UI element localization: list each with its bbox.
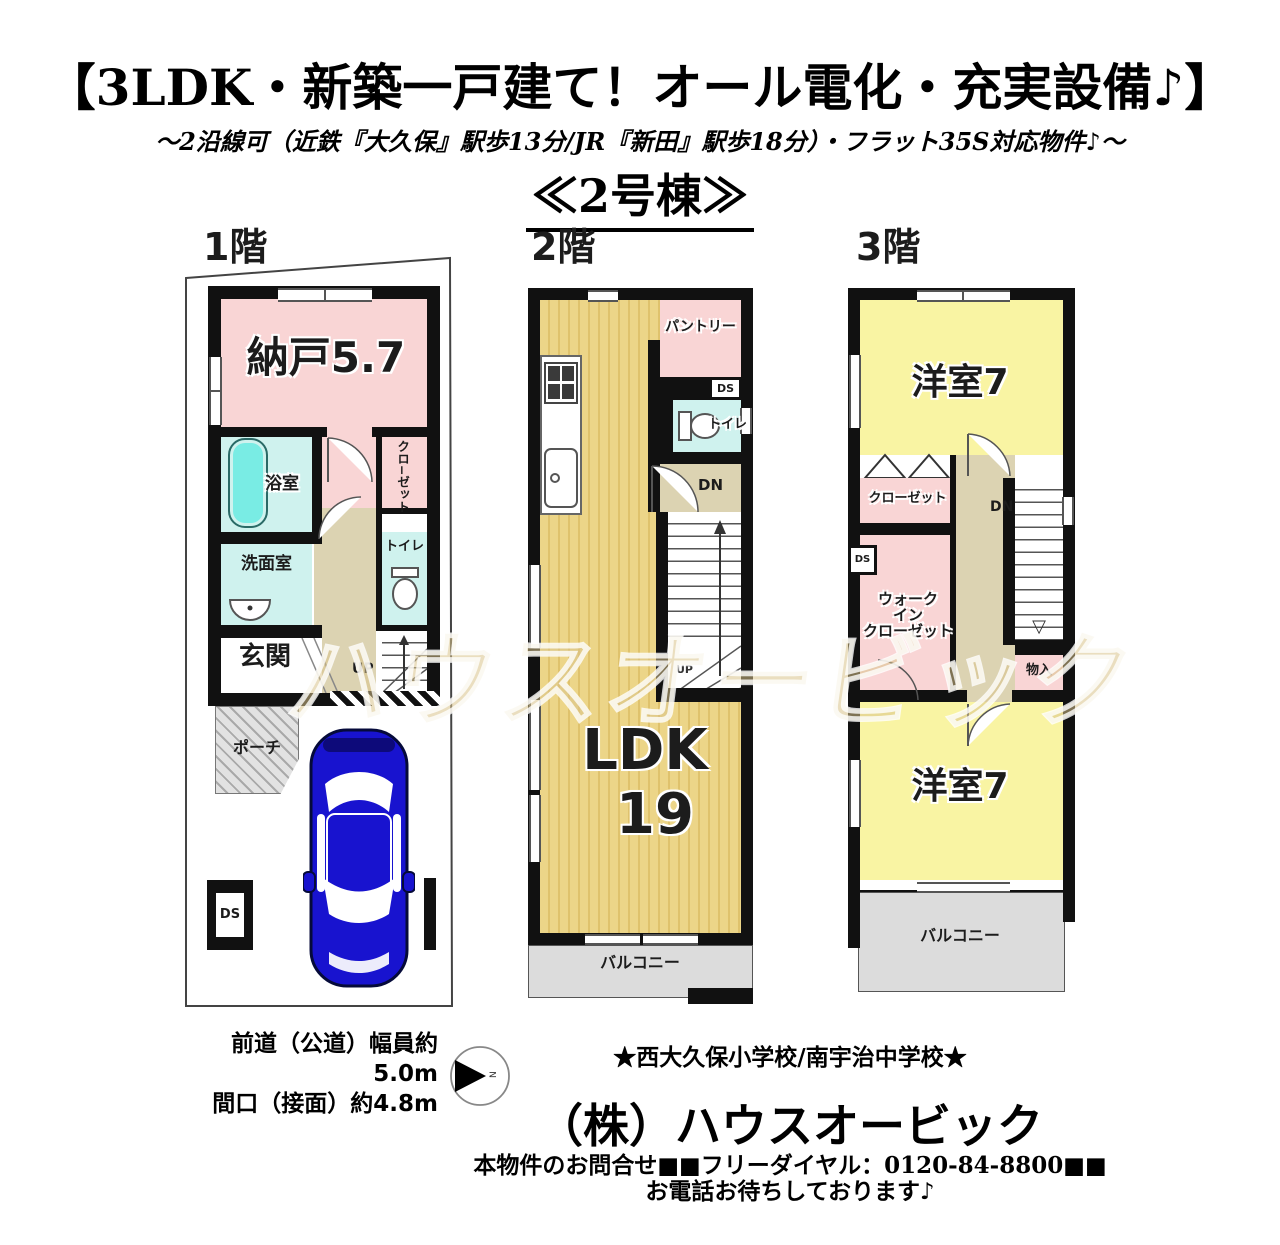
f3-left-window-2 — [849, 760, 861, 827]
road-info-line2: 間口（接面）約4.8m — [212, 1091, 438, 1117]
f1-closet-label: クロ−ゼット — [396, 440, 409, 513]
f2-balcony-label: バルコニー — [560, 955, 720, 972]
phone-wait-line: お電話お待ちしております♪ — [440, 1172, 1140, 1206]
f3-right-window — [1062, 497, 1074, 525]
f2-balcony-window-2 — [643, 934, 698, 945]
f1-washroom-label: 洗面室 — [221, 556, 312, 574]
f3-ds-box: DS — [848, 545, 877, 575]
page-title: 【3LDK・新築一戸建て！オール電化・充実設備♪】 — [0, 48, 1280, 120]
f3-ds-label: DS — [855, 555, 871, 566]
f3-balcony-label: バルコニー — [880, 928, 1040, 945]
f2-dn-label: DN — [698, 478, 723, 494]
f2-left-window-3 — [529, 795, 541, 862]
f1-ds-label: DS — [220, 908, 240, 922]
f3-bedtop-label: 洋室7 — [880, 364, 1040, 402]
f2-hall-door-arc — [650, 464, 700, 514]
f3-closet-label: クローゼット — [860, 492, 955, 506]
sink-icon — [544, 448, 578, 508]
f1-nando-door-arc — [327, 437, 373, 483]
f1-nando-label: 納戸5.7 — [231, 336, 421, 380]
f1-toilet-label: トイレ — [382, 540, 427, 554]
compass-n-label: N — [489, 1071, 499, 1078]
f3-bedbottom-label: 洋室7 — [880, 768, 1040, 806]
f2-toilet-label: トイレ — [708, 418, 747, 432]
f3-left-window-1 — [849, 355, 861, 428]
flyer-canvas: 【3LDK・新築一戸建て！オール電化・充実設備♪】 ～2沿線可（近鉄『大久保』駅… — [0, 0, 1280, 1245]
building-number: ≪2号棟≫ — [526, 160, 754, 232]
page-subtitle: ～2沿線可（近鉄『大久保』駅歩13分/JR『新田』駅歩18分）・フラット35S対… — [0, 122, 1280, 157]
f2-pantry-room — [660, 300, 741, 377]
f2-ds-label: DS — [717, 383, 734, 395]
schools-note: ★西大久保小学校/南宇治中学校★ — [560, 1038, 1020, 1072]
stove-icon — [544, 362, 578, 404]
company-watermark: ハウスオービック — [280, 600, 1149, 747]
road-info-line1: 前道（公道）幅員約5.0m — [231, 1031, 438, 1087]
f3-bedtop-door-arc — [966, 432, 1012, 478]
f1-bath-door-arc — [318, 496, 362, 540]
road-info: 前道（公道）幅員約5.0m 間口（接面）約4.8m — [180, 1030, 438, 1120]
f2-top-window — [588, 290, 618, 302]
car-icon — [303, 726, 415, 990]
f3-closet-folding-doors — [863, 453, 953, 478]
floor2-label: 2階 — [531, 228, 595, 268]
f2-pantry-label: パントリー — [660, 320, 741, 335]
f2-ldk-size-label: 19 — [570, 786, 740, 845]
washbasin-icon — [228, 598, 272, 622]
f1-bath-label: 浴室 — [250, 476, 314, 494]
floor3-label: 3階 — [856, 228, 920, 268]
f2-balcony-window-1 — [585, 934, 640, 945]
f3-dn-label: DN — [990, 500, 1013, 515]
